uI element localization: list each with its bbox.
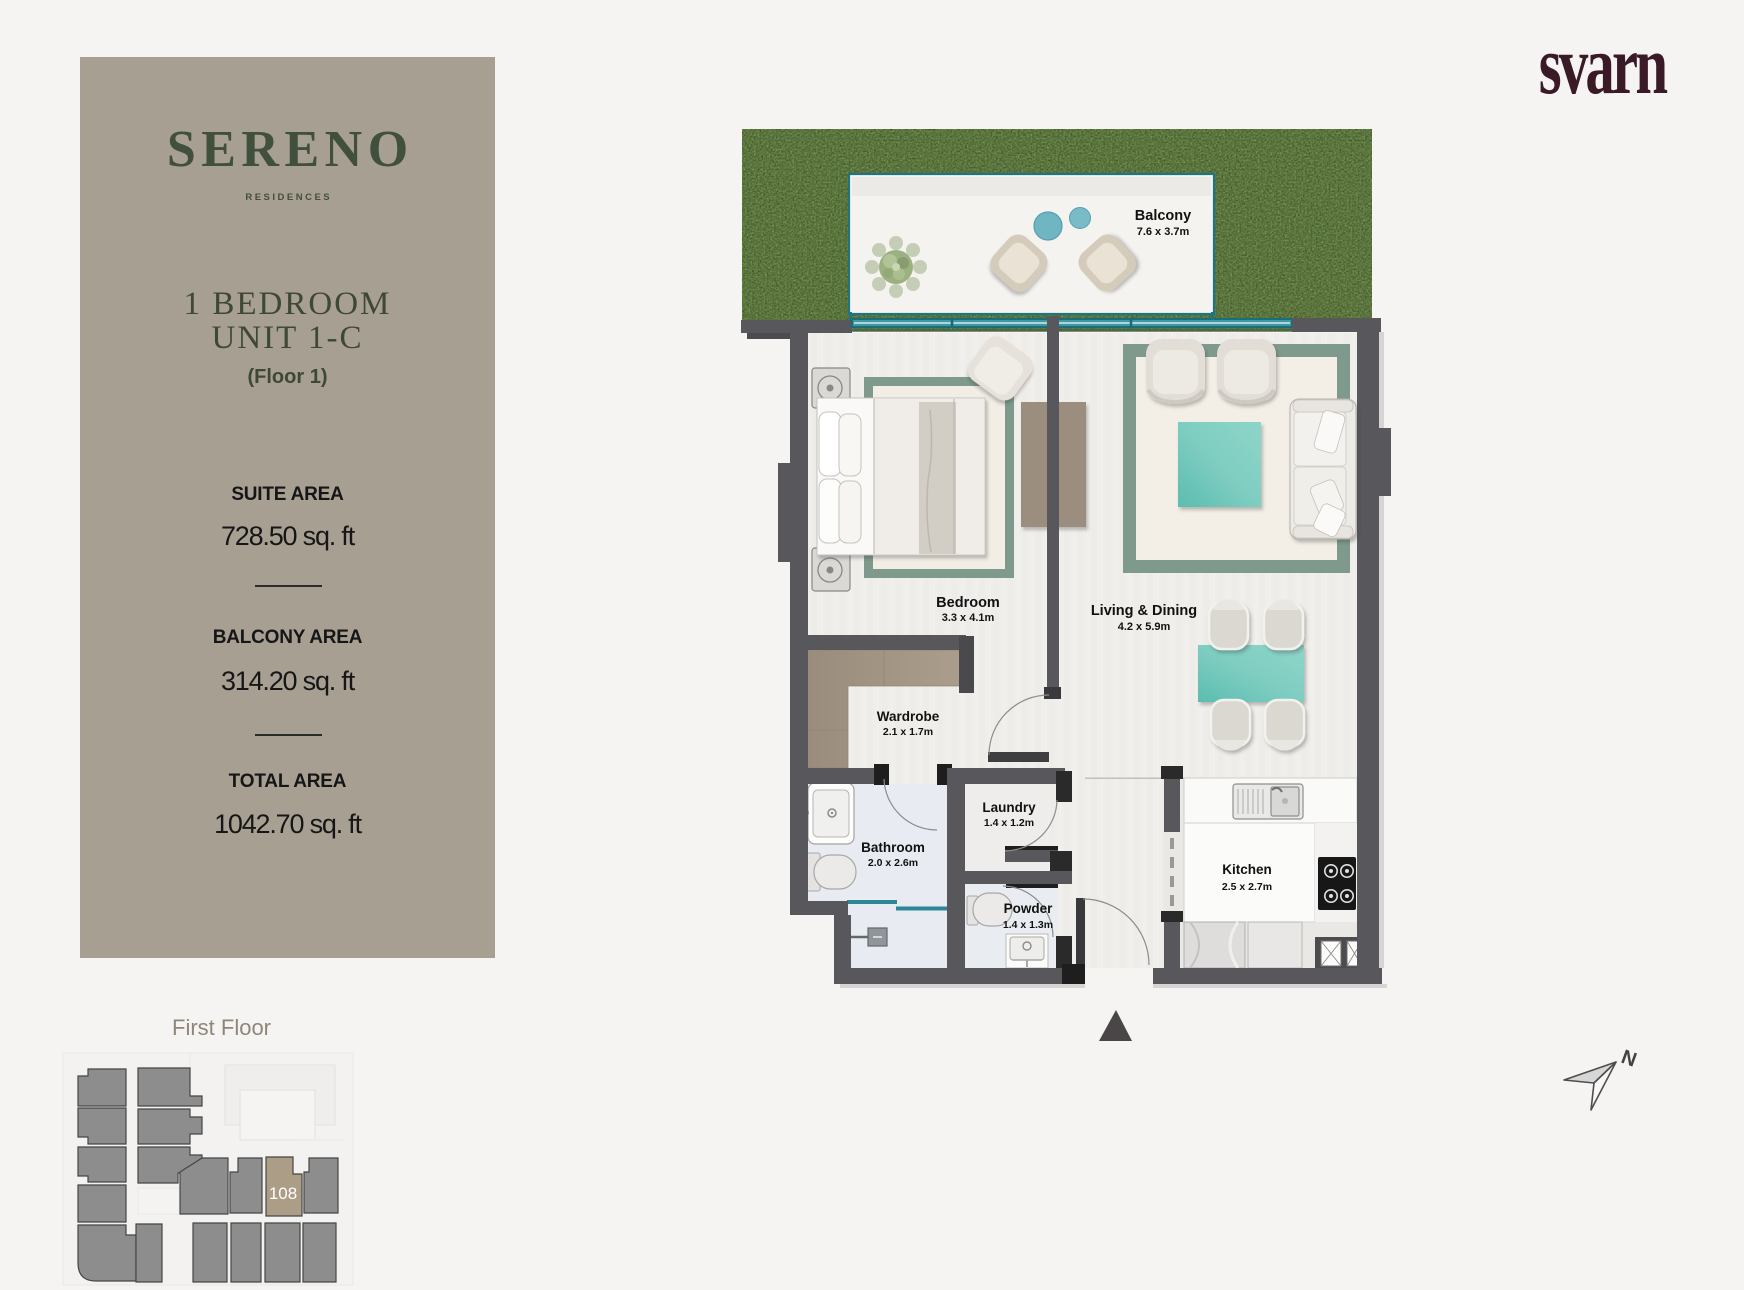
svg-text:Laundry: Laundry (982, 800, 1036, 815)
svg-text:1.4 x 1.2m: 1.4 x 1.2m (984, 817, 1034, 829)
svg-text:Bedroom: Bedroom (936, 595, 1000, 611)
svg-text:Balcony: Balcony (1135, 208, 1191, 224)
svg-text:7.6 x 3.7m: 7.6 x 3.7m (1137, 226, 1190, 238)
svg-text:Bathroom: Bathroom (861, 840, 925, 855)
svg-text:Kitchen: Kitchen (1222, 862, 1272, 877)
svg-text:1.4 x 1.3m: 1.4 x 1.3m (1003, 919, 1053, 931)
svg-text:N: N (1618, 1046, 1639, 1072)
svg-text:108: 108 (269, 1184, 297, 1203)
svg-text:2.5 x 2.7m: 2.5 x 2.7m (1222, 881, 1272, 893)
svg-text:4.2 x 5.9m: 4.2 x 5.9m (1118, 621, 1171, 633)
svg-text:2.0 x 2.6m: 2.0 x 2.6m (868, 857, 918, 869)
svg-text:Living & Dining: Living & Dining (1091, 603, 1197, 619)
svg-text:3.3 x 4.1m: 3.3 x 4.1m (942, 612, 995, 624)
svg-text:2.1 x 1.7m: 2.1 x 1.7m (883, 726, 933, 738)
svg-text:Powder: Powder (1004, 901, 1054, 916)
svg-text:Wardrobe: Wardrobe (877, 709, 940, 724)
